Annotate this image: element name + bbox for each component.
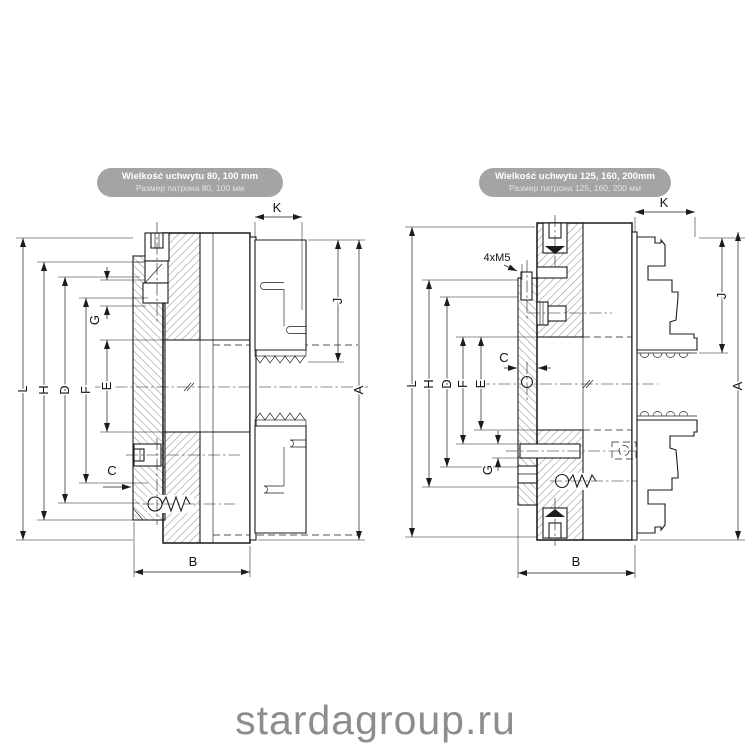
dim-K-left: K xyxy=(273,200,282,215)
dim-L-right: L xyxy=(404,380,419,387)
dim-A-left: A xyxy=(351,385,366,394)
dim-J-left: J xyxy=(330,298,345,305)
page: Wielkość uchwytu 80, 100 mm Размер патро… xyxy=(0,0,751,749)
dim-L-left: L xyxy=(15,385,30,392)
dim-G-right: G xyxy=(480,465,495,475)
left-chuck-body xyxy=(95,222,368,543)
dim-D-right: D xyxy=(439,379,454,388)
watermark: stardagroup.ru xyxy=(0,697,751,744)
dim-E-right: E xyxy=(473,379,488,388)
dim-E-left: E xyxy=(99,381,114,390)
dim-H-right: H xyxy=(421,379,436,388)
dim-F-right: F xyxy=(455,380,470,388)
technical-drawing: L H D F E G C K J A B xyxy=(0,0,751,749)
top-jaw xyxy=(637,237,697,358)
note-4xM5: 4xM5 xyxy=(484,252,511,264)
dim-C-left: C xyxy=(107,463,116,478)
dim-B-right: B xyxy=(572,554,581,569)
top-jaw xyxy=(255,240,306,363)
right-chuck-body xyxy=(478,215,697,546)
dim-H-left: H xyxy=(36,385,51,394)
dim-B-left: B xyxy=(189,554,198,569)
dim-D-left: D xyxy=(57,385,72,394)
dim-J-right: J xyxy=(714,293,729,300)
dim-A-right: A xyxy=(730,381,745,390)
dim-F-left: F xyxy=(78,386,93,394)
bottom-jaw xyxy=(255,413,306,533)
dim-C-right: C xyxy=(499,350,508,365)
bottom-jaw xyxy=(637,412,697,534)
dim-G-left: G xyxy=(87,315,102,325)
dim-K-right: K xyxy=(660,195,669,210)
